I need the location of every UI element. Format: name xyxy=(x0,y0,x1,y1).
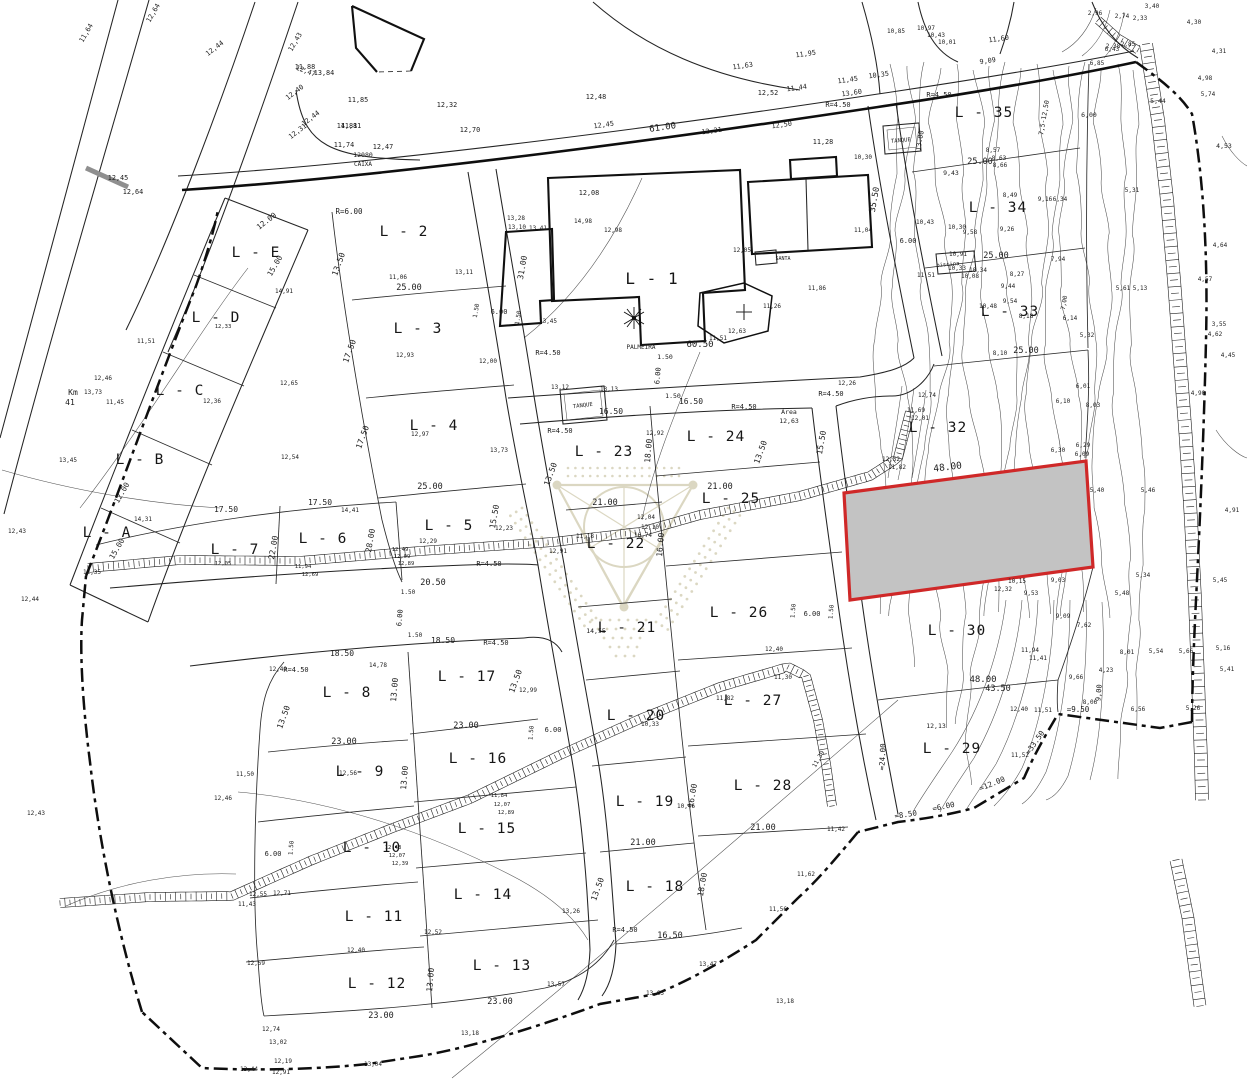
dimension-label: 12,05 xyxy=(215,561,232,567)
dimension-label: 12,52 xyxy=(758,89,778,97)
lot-label: L - 7 xyxy=(211,542,260,558)
lot-label: L - 8 xyxy=(323,685,372,701)
dimension-label: 11,85 xyxy=(348,96,368,104)
dimension-label: 8,18 xyxy=(1019,313,1034,320)
watermark-dot xyxy=(714,552,717,555)
watermark-dot xyxy=(693,560,696,563)
dimension-label: 13,73 xyxy=(490,447,508,454)
dimension-label: 12,59 xyxy=(247,960,265,967)
dimension-label: 13,04 xyxy=(364,1061,382,1068)
watermark-dot xyxy=(624,655,627,658)
watermark-dot xyxy=(641,467,644,470)
dimension-label: 12,91 xyxy=(549,548,567,555)
dimension-label: 14,98 xyxy=(574,218,592,225)
dimension-label: 12,74 xyxy=(918,392,936,399)
annotation-label: Km xyxy=(68,388,78,397)
watermark-dot xyxy=(703,545,706,548)
dimension-label: 6,01 xyxy=(1076,383,1091,390)
dimension-label: 12,04 xyxy=(637,514,655,521)
dimension-label: 10,33 xyxy=(641,721,659,728)
dimension-label: 11,51 xyxy=(917,272,935,279)
dimension-label: 11,62 xyxy=(797,871,815,878)
dimension-label: 12,97 xyxy=(411,431,429,438)
watermark-dot xyxy=(641,475,644,478)
watermark-dot xyxy=(573,610,576,613)
dimension-label: 25.00 xyxy=(1013,346,1039,356)
dimension-label: R=4.50 xyxy=(926,91,951,99)
lot-label: L - 11 xyxy=(345,909,403,925)
dimension-label: 14,78 xyxy=(369,662,387,669)
watermark-dot xyxy=(633,655,636,658)
watermark-dot xyxy=(564,584,567,587)
dimension-label: 13,41 xyxy=(529,225,547,232)
watermark-dot xyxy=(719,545,722,548)
watermark-dot xyxy=(555,558,558,561)
dimension-label: 12,99 xyxy=(519,687,537,694)
lot-label: L - 17 xyxy=(438,669,496,685)
watermark-dot xyxy=(604,467,607,470)
lot-label: L - 35 xyxy=(955,105,1013,121)
watermark-dot xyxy=(603,637,606,640)
dimension-label: 11,18 xyxy=(576,533,594,540)
dimension-label: 12,40 xyxy=(765,646,783,653)
watermark-dot xyxy=(585,602,588,605)
dimension-label: 12,69 xyxy=(302,572,319,578)
dimension-label: 5,32 xyxy=(1080,332,1095,339)
dimension-label: 16,74 xyxy=(634,532,652,539)
dimension-label: 10,30 xyxy=(854,154,872,161)
dimension-label: 13,47 xyxy=(699,961,717,968)
dimension-label: 9,00 xyxy=(1094,684,1103,701)
dimension-label: 12,44 xyxy=(21,596,39,603)
dimension-label: 5,45 xyxy=(1213,577,1228,584)
dimension-label: 4,53 xyxy=(1216,142,1232,150)
dimension-label: 60.50 xyxy=(686,340,713,350)
dimension-label: 8,10 xyxy=(993,350,1008,357)
watermark-dot xyxy=(680,594,683,597)
watermark-dot xyxy=(683,575,686,578)
dimension-label: 25.00 xyxy=(396,283,422,293)
lot-label: L - 30 xyxy=(928,623,986,639)
dimension-label: 13,26 xyxy=(562,908,580,915)
dimension-label: 12,10 xyxy=(641,524,659,531)
dimension-label: 16.50 xyxy=(679,397,703,406)
dimension-label: 13,57 xyxy=(547,981,565,988)
lot-label: L - 2 xyxy=(380,224,429,240)
dimension-label: 6,56 xyxy=(1131,706,1146,713)
dimension-label: 5,46 xyxy=(1141,487,1156,494)
dimension-label: 11,82 xyxy=(888,464,906,471)
dimension-label: 5,16 xyxy=(1216,645,1231,652)
watermark-dot xyxy=(525,525,528,528)
dimension-label: 4,23 xyxy=(1099,667,1114,674)
dimension-label: 4,90 xyxy=(1191,390,1206,397)
dimension-label: 12,46 xyxy=(214,795,232,802)
watermark-dot xyxy=(611,475,614,478)
dimension-label: 6.00 xyxy=(491,308,508,316)
watermark-dot xyxy=(509,514,512,517)
dimension-label: 13,73 xyxy=(84,389,102,396)
dimension-label: 12,32 xyxy=(437,101,457,109)
dimension-label: 11,84 xyxy=(491,793,508,799)
watermark-dot xyxy=(633,475,636,478)
watermark-dot xyxy=(630,637,633,640)
watermark-dot xyxy=(514,522,517,525)
dimension-label: 12,74 xyxy=(262,1026,280,1033)
dimension-label: 21.00 xyxy=(750,823,776,833)
dimension-label: 5,66 xyxy=(1179,648,1194,655)
watermark-dot xyxy=(619,475,622,478)
dimension-label: 8,57 xyxy=(986,147,1001,154)
watermark-dot xyxy=(544,566,547,569)
dimension-label: 23.00 xyxy=(453,721,479,731)
watermark-dot xyxy=(554,569,557,572)
dimension-label: 12,01 xyxy=(911,415,929,422)
lot-label: L - 18 xyxy=(626,879,684,895)
dimension-label: 11,42 xyxy=(827,826,845,833)
lot-label: L - C xyxy=(156,383,205,399)
lot-label: L - 19 xyxy=(616,794,674,810)
dimension-label: 17.50 xyxy=(214,505,238,514)
dimension-label: 11,28 xyxy=(813,138,833,146)
watermark-dot xyxy=(589,475,592,478)
dimension-label: 11,52 xyxy=(1011,752,1029,759)
dimension-label: 12,29 xyxy=(419,538,437,545)
watermark-dot xyxy=(590,609,593,612)
dimension-label: 9,66 xyxy=(1069,674,1084,681)
dimension-label: 12,89 xyxy=(498,810,515,816)
dimension-label: 12,05 xyxy=(733,247,751,254)
dimension-label: 12,92 xyxy=(646,430,664,437)
dimension-label: 12,13 xyxy=(926,722,946,730)
dimension-label: 7,94 xyxy=(1051,256,1066,263)
dimension-label: 9,43 xyxy=(943,169,959,177)
watermark-dot xyxy=(596,467,599,470)
dimension-label: 16.50 xyxy=(657,931,683,941)
dimension-label: 13,10 xyxy=(508,224,526,231)
dimension-label: 6,10 xyxy=(1056,398,1071,405)
watermark-dot xyxy=(738,514,741,517)
watermark-dot xyxy=(570,580,573,583)
watermark-dot xyxy=(611,467,614,470)
annotation-label: SANTA xyxy=(775,256,790,262)
dimension-label: 21.00 xyxy=(630,838,656,848)
dimension-label: 13,84 xyxy=(314,69,334,77)
watermark-dot xyxy=(621,637,624,640)
watermark-dot xyxy=(705,567,708,570)
dimension-label: 23.00 xyxy=(368,1011,394,1021)
dimension-label: 10,85 xyxy=(887,28,905,35)
dimension-label: 6.00 xyxy=(804,610,821,618)
dimension-label: R=4.50 xyxy=(476,560,501,568)
dimension-label: 5,44 xyxy=(1150,97,1166,105)
watermark-dot xyxy=(718,533,721,536)
annotation-label: Área xyxy=(781,407,797,416)
watermark-dot xyxy=(535,540,538,543)
dimension-label: 11,50 xyxy=(236,771,254,778)
dimension-label: 6,00 xyxy=(1081,111,1097,119)
dimension-label: 12,63 xyxy=(728,328,746,335)
lot-label: L - 24 xyxy=(687,429,745,445)
dimension-label: 13,12 xyxy=(551,384,569,391)
dimension-label: 5,40 xyxy=(1090,487,1105,494)
watermark-dot xyxy=(679,583,682,586)
dimension-label: 6.00 xyxy=(395,609,404,626)
watermark-dot xyxy=(535,529,538,532)
watermark-dot xyxy=(519,529,522,532)
dimension-label: 1.50 xyxy=(789,603,797,618)
dimension-label: 14,41 xyxy=(341,507,359,514)
dimension-label: 1.50 xyxy=(401,589,416,596)
dimension-label: 12,93 xyxy=(396,352,414,359)
dimension-label: 2,85 xyxy=(1121,41,1136,48)
dimension-label: 11,74 xyxy=(334,141,354,149)
dimension-label: 6,85 xyxy=(1090,60,1105,67)
watermark-dot xyxy=(727,507,730,510)
dimension-label: 12,33 xyxy=(215,324,232,330)
watermark-dot xyxy=(695,583,698,586)
dimension-label: 21.00 xyxy=(592,498,618,508)
watermark-dot xyxy=(664,605,667,608)
dimension-label: 4,31 xyxy=(1212,48,1227,55)
dimension-label: =9.50 xyxy=(1067,705,1090,714)
dimension-label: 5,48 xyxy=(1115,590,1130,597)
lot-label: L - 1 xyxy=(625,269,678,288)
dimension-label: 11,69 xyxy=(907,407,925,414)
dimension-label: 25.00 xyxy=(983,251,1009,261)
watermark-dot xyxy=(704,556,707,559)
dimension-label: 10,43 xyxy=(927,32,945,39)
dimension-label: 12,52 xyxy=(424,929,442,936)
dimension-label: 12,55 xyxy=(249,891,267,898)
dimension-label: R=4.50 xyxy=(483,639,508,647)
dimension-label: 11,81 xyxy=(341,122,361,130)
dimension-label: 6.00 xyxy=(900,237,917,245)
dimension-label: 10,97 xyxy=(917,25,935,32)
dimension-label: 11,04 xyxy=(854,227,872,234)
dimension-label: 12,43 xyxy=(385,845,402,851)
dimension-label: 2,33 xyxy=(1133,15,1148,22)
watermark-dot xyxy=(707,537,710,540)
dimension-label: 6.00 xyxy=(545,726,562,734)
dimension-label: 9,44 xyxy=(1001,283,1016,290)
watermark-dot xyxy=(709,548,712,551)
dimension-label: 1.50 xyxy=(287,840,295,855)
dimension-label: R=4.50 xyxy=(535,349,560,357)
watermark-dot xyxy=(700,575,703,578)
dimension-label: 12,71 xyxy=(273,890,291,897)
lot-label: L - A xyxy=(83,525,132,541)
watermark-dot xyxy=(596,475,599,478)
dimension-label: 12,56 xyxy=(339,770,357,777)
watermark-dot xyxy=(619,467,622,470)
dimension-label: 17.50 xyxy=(308,498,332,507)
watermark-dot xyxy=(661,624,664,627)
dimension-label: 11,94 xyxy=(1021,647,1039,654)
lot-label: L - 12 xyxy=(348,976,406,992)
dimension-label: 16.50 xyxy=(599,407,623,416)
dimension-label: 11,41 xyxy=(1029,655,1047,662)
dimension-label: 13,45 xyxy=(539,318,557,325)
dimension-label: =24.00 xyxy=(877,743,887,771)
dimension-label: 12,54 xyxy=(281,454,299,461)
watermark-dot xyxy=(582,475,585,478)
dimension-label: 4,62 xyxy=(1208,331,1223,338)
dimension-label: 6,29 xyxy=(1076,442,1091,449)
dimension-label: R=4.50 xyxy=(612,926,637,934)
dimension-label: 12,40 xyxy=(347,947,365,954)
dimension-label: 12,47 xyxy=(373,143,393,151)
dimension-label: 25.00 xyxy=(417,482,443,492)
watermark-dot xyxy=(698,552,701,555)
dimension-label: 12,49 xyxy=(392,547,409,553)
dimension-label: 12,40 xyxy=(269,666,287,673)
dimension-label: 12,39 xyxy=(392,861,409,867)
dimension-label: 12,70 xyxy=(460,126,480,134)
watermark-dot xyxy=(521,507,524,510)
dimension-label: 2,96 xyxy=(1088,10,1103,17)
dimension-label: 5,34 xyxy=(1136,572,1151,579)
dimension-label: 3,55 xyxy=(1212,321,1227,328)
dimension-label: 4,98 xyxy=(1198,75,1213,82)
watermark-dot xyxy=(712,529,715,532)
watermark-dot xyxy=(686,598,689,601)
watermark-dot xyxy=(666,628,669,631)
dimension-label: 12,46 xyxy=(94,375,112,382)
watermark-dot xyxy=(574,475,577,478)
watermark-dot xyxy=(567,467,570,470)
watermark-dot xyxy=(728,518,731,521)
watermark-dot xyxy=(615,655,618,658)
dimension-label: 13,02 xyxy=(269,1039,287,1046)
dimension-label: 12,40 xyxy=(1010,706,1028,713)
dimension-label: 10,91 xyxy=(949,251,967,258)
watermark-dot xyxy=(553,580,556,583)
dimension-label: 11,56 xyxy=(769,906,787,913)
watermark-dot xyxy=(626,467,629,470)
dimension-label: 11,30 xyxy=(774,674,792,681)
watermark-dot xyxy=(699,564,702,567)
watermark-dot xyxy=(574,599,577,602)
dimension-label: 12,00 xyxy=(479,358,497,365)
watermark-dot xyxy=(724,537,727,540)
dimension-label: 12,65 xyxy=(280,380,298,387)
dimension-label: 5,13 xyxy=(1133,285,1148,292)
lot-label: L - 15 xyxy=(458,821,516,837)
lot-label: L - 6 xyxy=(299,531,348,547)
dimension-label: 25.00 xyxy=(967,157,993,167)
dimension-label: 21.00 xyxy=(707,482,733,492)
dimension-label: 4,64 xyxy=(1213,242,1228,249)
dimension-label: 4,57 xyxy=(1198,276,1213,283)
dimension-label: 23.00 xyxy=(331,737,357,747)
watermark-dot xyxy=(685,586,688,589)
dimension-label: 4,45 xyxy=(1221,352,1236,359)
watermark-dot xyxy=(595,617,598,620)
dimension-label: 13,65 xyxy=(646,990,664,997)
dimension-label: 14,31 xyxy=(134,516,152,523)
annotation-label: 12080 xyxy=(353,151,373,159)
lot-label: L - 26 xyxy=(710,605,768,621)
dimension-label: 11,26 xyxy=(763,303,781,310)
watermark-dot xyxy=(627,646,630,649)
dimension-label: 8,01 xyxy=(1120,649,1135,656)
watermark-dot xyxy=(560,565,563,568)
watermark-dot xyxy=(549,573,552,576)
lot-label: L - 21 xyxy=(598,620,656,636)
dimension-label: 11,45 xyxy=(106,399,124,406)
lot-label: L - 16 xyxy=(449,751,507,767)
watermark-dot xyxy=(549,562,552,565)
dimension-label: 9,09 xyxy=(1056,613,1071,620)
watermark-dot xyxy=(675,602,678,605)
dimension-label: 12,89 xyxy=(398,561,415,567)
cadastral-site-plan: L - 1L - 2L - 3L - 4L - 5L - 6L - 7L - 8… xyxy=(0,0,1247,1080)
lot-label: L - 28 xyxy=(734,778,792,794)
watermark-dot xyxy=(574,467,577,470)
dimension-label: 18.50 xyxy=(431,636,455,645)
dimension-label: 12,08 xyxy=(579,189,599,197)
watermark-dot xyxy=(612,637,615,640)
dimension-label: 23.00 xyxy=(487,997,513,1007)
dimension-label: 2,74 xyxy=(1115,13,1130,20)
dimension-label: 14,91 xyxy=(275,288,293,295)
dimension-label: 1.50 xyxy=(408,632,423,639)
dimension-label: 5,41 xyxy=(1220,666,1235,673)
dimension-label: 9,54 xyxy=(1003,298,1018,305)
watermark-dot xyxy=(515,511,518,514)
dimension-label: 10,43 xyxy=(916,219,934,226)
watermark-dot xyxy=(609,646,612,649)
watermark-dot xyxy=(558,588,561,591)
lot-label: L - B xyxy=(116,452,165,468)
watermark-dot xyxy=(591,619,594,622)
annotation-label: 41 xyxy=(65,398,75,407)
lot-label: L - 29 xyxy=(923,741,981,757)
watermark-dot xyxy=(734,522,737,525)
watermark-dot xyxy=(604,475,607,478)
dimension-label: 8,66 xyxy=(993,162,1008,169)
watermark-dot xyxy=(674,590,677,593)
dimension-label: 10,15 xyxy=(1008,578,1026,585)
dimension-label: 10,46 xyxy=(677,803,695,810)
dimension-label: 12,35 xyxy=(83,569,101,576)
dimension-label: 14,55 xyxy=(586,627,606,635)
dimension-label: 13,45 xyxy=(59,457,77,464)
watermark-dot xyxy=(729,529,732,532)
watermark-dot xyxy=(575,587,578,590)
dimension-label: 11,86 xyxy=(808,285,826,292)
watermark-dot xyxy=(681,605,684,608)
watermark-dot xyxy=(665,617,668,620)
dimension-label: 13,44 xyxy=(240,1066,258,1073)
lot-label: L - 23 xyxy=(575,444,633,460)
dimension-label: 1.50 xyxy=(827,604,835,619)
dimension-label: 6,09 xyxy=(1075,451,1090,458)
lot-label: L - 25 xyxy=(702,491,760,507)
watermark-dot xyxy=(529,544,532,547)
watermark-dot xyxy=(567,475,570,478)
dimension-label: 10,01 xyxy=(938,39,956,46)
lot-label: L - 32 xyxy=(909,420,967,436)
dimension-label: 5,26 xyxy=(1186,705,1201,712)
watermark-dot xyxy=(639,637,642,640)
dimension-label: 9,53 xyxy=(1024,590,1039,597)
watermark-dot xyxy=(626,475,629,478)
watermark-dot xyxy=(678,475,681,478)
watermark-dot xyxy=(659,613,662,616)
watermark-dot xyxy=(713,541,716,544)
